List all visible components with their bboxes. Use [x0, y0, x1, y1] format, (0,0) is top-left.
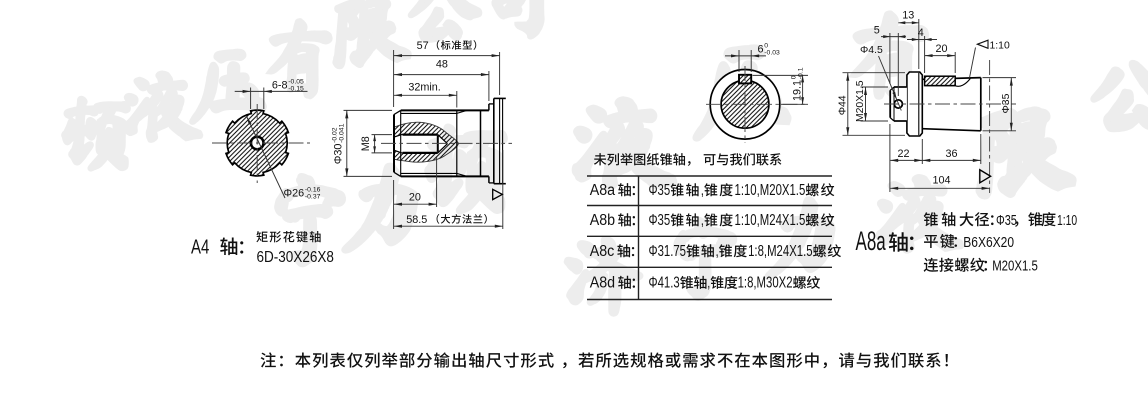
svg-text:1:10,M24X1.5: 1:10,M24X1.5 [735, 212, 806, 229]
svg-text:1:10: 1:10 [990, 40, 1010, 51]
svg-text:Φ44: Φ44 [837, 95, 848, 115]
svg-text:Φ35: Φ35 [649, 212, 671, 229]
svg-text:Φ30: Φ30 [333, 144, 345, 165]
svg-text:19.1: 19.1 [791, 80, 803, 101]
svg-text:1:8,M30X2: 1:8,M30X2 [738, 275, 793, 292]
svg-text:A8d: A8d [590, 275, 615, 292]
svg-text:A8b: A8b [590, 212, 615, 229]
svg-text:48: 48 [436, 59, 448, 71]
svg-text:M20X1.5: M20X1.5 [992, 258, 1038, 275]
svg-text:A8a: A8a [856, 226, 886, 256]
svg-text:22: 22 [898, 148, 910, 160]
svg-text:20: 20 [409, 191, 421, 203]
svg-text:32min.: 32min. [408, 81, 440, 93]
svg-text:5: 5 [874, 24, 880, 36]
svg-text:0: 0 [791, 75, 798, 79]
svg-text:Φ31.75: Φ31.75 [649, 243, 687, 260]
svg-text:1:8,M24X1.5: 1:8,M24X1.5 [748, 243, 813, 260]
svg-text:A8c: A8c [590, 243, 615, 260]
svg-text:1:10,M20X1.5: 1:10,M20X1.5 [735, 182, 806, 199]
svg-text:,: , [701, 212, 704, 229]
svg-text:6: 6 [758, 43, 764, 55]
svg-text:M8: M8 [360, 136, 372, 151]
svg-text:36: 36 [946, 148, 958, 160]
svg-text:-0.041: -0.041 [339, 123, 346, 142]
svg-text:,: , [707, 275, 710, 292]
svg-text:20: 20 [936, 43, 948, 55]
svg-text:6D-30X26X8: 6D-30X26X8 [257, 249, 334, 266]
svg-text:-0.1: -0.1 [798, 67, 805, 79]
svg-text:-0.03: -0.03 [764, 50, 780, 57]
svg-text:,: , [701, 182, 704, 199]
svg-text:4: 4 [918, 27, 924, 39]
svg-text:Φ35: Φ35 [649, 182, 671, 199]
svg-text:104: 104 [933, 174, 951, 186]
svg-text:Φ35: Φ35 [1001, 93, 1012, 113]
svg-text:57: 57 [417, 40, 429, 52]
svg-text:A4: A4 [191, 237, 209, 259]
svg-text:-0.37: -0.37 [305, 194, 321, 201]
svg-text:B6X6X20: B6X6X20 [963, 234, 1014, 251]
svg-text:6-8: 6-8 [272, 79, 288, 91]
svg-text:-0.05: -0.05 [288, 79, 304, 86]
svg-text:-0.16: -0.16 [305, 187, 321, 194]
svg-text:M20X1.5: M20X1.5 [855, 80, 866, 122]
svg-text:0: 0 [764, 43, 768, 50]
svg-text:Φ35: Φ35 [996, 212, 1017, 229]
svg-text:Φ4.5: Φ4.5 [860, 45, 883, 56]
svg-text:Φ41.3: Φ41.3 [649, 275, 680, 292]
svg-text:-0.02: -0.02 [332, 127, 339, 143]
svg-text:13: 13 [902, 10, 914, 22]
svg-text:1:10: 1:10 [1057, 212, 1077, 229]
svg-text:-0.15: -0.15 [288, 86, 304, 93]
svg-text:Φ26: Φ26 [284, 187, 305, 199]
svg-text:,: , [716, 243, 719, 260]
svg-text:A8a: A8a [590, 182, 616, 199]
svg-text:58.5: 58.5 [406, 214, 427, 226]
